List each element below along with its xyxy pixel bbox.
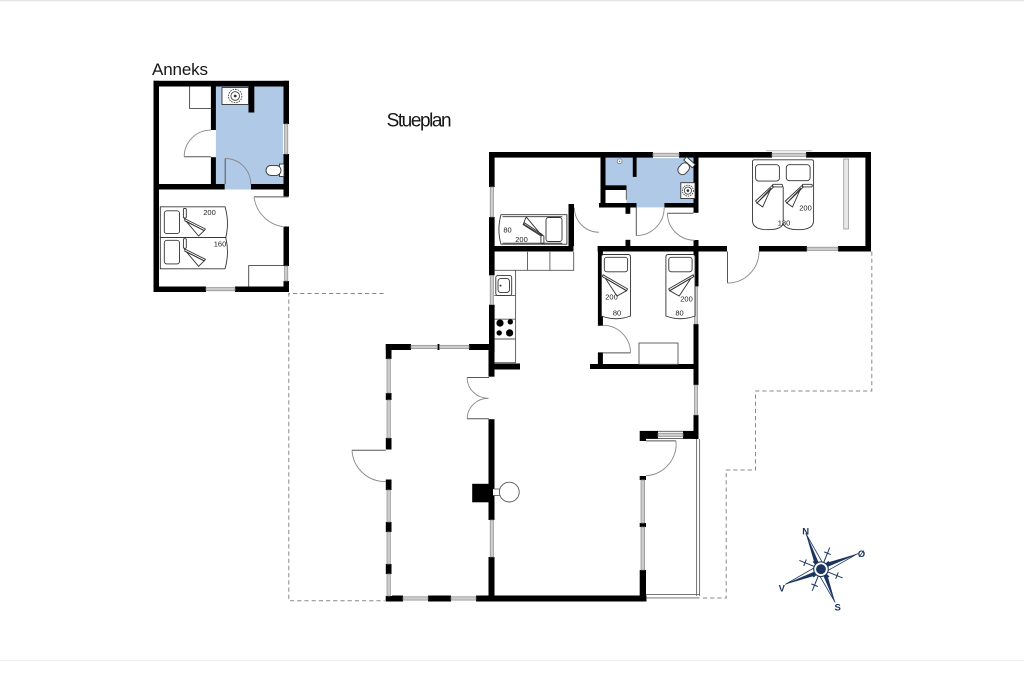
- svg-text:S: S: [835, 603, 841, 614]
- svg-text:Ø: Ø: [858, 549, 865, 560]
- svg-text:200: 200: [799, 203, 812, 212]
- svg-text:180: 180: [778, 218, 791, 227]
- svg-text:N: N: [802, 527, 809, 538]
- svg-text:80: 80: [613, 309, 621, 318]
- svg-text:200: 200: [605, 293, 618, 302]
- svg-text:V: V: [779, 583, 786, 594]
- svg-text:200: 200: [515, 235, 528, 244]
- svg-text:Stueplan: Stueplan: [387, 110, 452, 131]
- svg-text:160: 160: [214, 239, 227, 248]
- svg-text:200: 200: [680, 294, 693, 303]
- svg-text:80: 80: [675, 309, 683, 318]
- svg-text:80: 80: [503, 225, 511, 234]
- svg-text:200: 200: [203, 208, 216, 217]
- svg-text:Anneks: Anneks: [152, 60, 208, 79]
